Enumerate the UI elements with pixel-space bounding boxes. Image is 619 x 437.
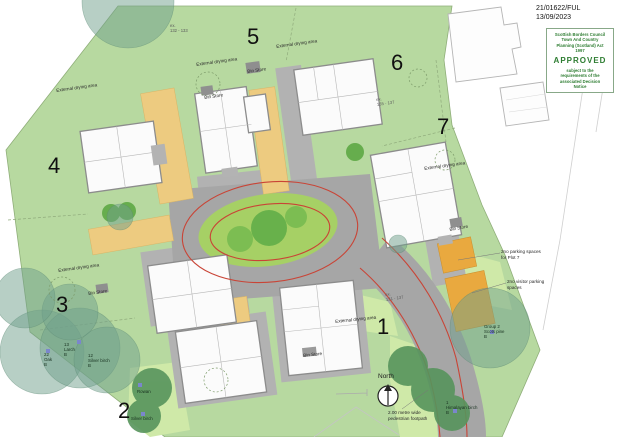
house-plot-1	[280, 280, 363, 375]
tree-label-oak: 22 Oak B	[44, 352, 52, 367]
plot-number-2: 2	[118, 398, 130, 424]
north-label: North	[378, 373, 394, 380]
approved-stamp: Scottish Borders Council Town And Countr…	[546, 28, 614, 93]
tree-label-silver-birch-b: Silver birch	[131, 416, 153, 421]
house-plot-3	[148, 255, 237, 333]
parking-plot7-label: 2no parking spaces for Plot 7	[501, 249, 541, 260]
tree-label-silver-birch: 12 Silver birch B	[88, 353, 110, 368]
stamp-status: APPROVED	[549, 56, 611, 65]
reference-number: 21/01622/FUL	[536, 5, 580, 12]
spot-level: ex. 132 - 133	[170, 24, 188, 34]
site-plan-graphic	[0, 0, 619, 437]
plot-number-7: 7	[437, 114, 449, 140]
tree-label-rowan: Rowan	[137, 389, 151, 394]
tree-label-larch: 13 Larch B	[64, 342, 75, 357]
stamp-authority: Scottish Borders Council Town And Countr…	[549, 32, 611, 53]
reference-date: 13/09/2023	[536, 14, 571, 21]
site-plan-drawing: 1 2 3 4 5 6 7 External drying area Exter…	[0, 0, 619, 437]
existing-buildings	[448, 7, 549, 126]
plot-number-5: 5	[247, 24, 259, 50]
drawing-reference: 21/01622/FUL13/09/2023	[536, 4, 580, 23]
visitor-parking-label: 2no visitor parking spaces	[507, 279, 544, 290]
tree-label-himalayan-birch: 1 Himalayan birch B	[446, 400, 477, 415]
footpath-label: 2.00 metre wide pedestrian footpath	[388, 410, 427, 421]
stamp-note: subject to the requirements of the assoc…	[549, 68, 611, 89]
plot-number-1: 1	[377, 314, 389, 340]
plot-number-6: 6	[391, 50, 403, 76]
house-plot-6	[294, 59, 382, 135]
tree-label-scots-pine: Group 2 Scots pine B	[484, 324, 505, 339]
plot-number-4: 4	[48, 153, 60, 179]
plot-number-3: 3	[56, 292, 68, 318]
